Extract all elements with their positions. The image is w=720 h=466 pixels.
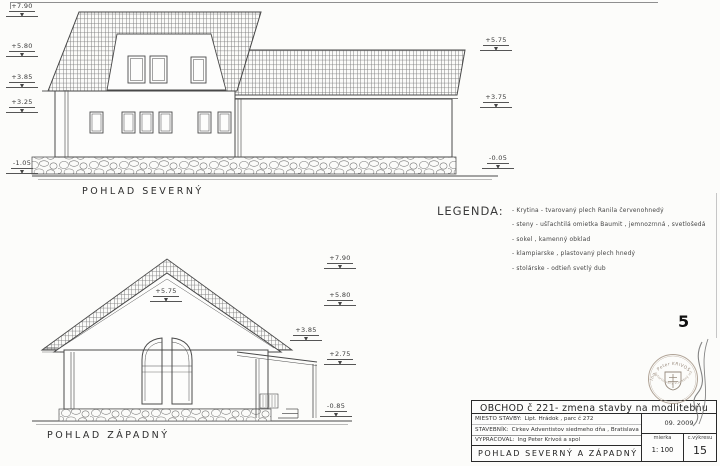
elevation-mark: +7.90: [6, 3, 38, 17]
west-view-title: POHLAD ZÁPADNÝ: [47, 430, 170, 441]
sheet-number: 5: [678, 312, 689, 331]
elevation-mark: +5.75: [150, 288, 182, 302]
legend-item: - Krytina - tvarovaný plech Ranila červe…: [512, 204, 720, 218]
scale-cell: mierka 1: 100: [642, 434, 684, 461]
elevation-mark: +5.75: [480, 37, 512, 51]
drawing-sheet: +7.90 +5.80 +3.85 +3.25 -1.05 +5.75 +3.7…: [0, 0, 720, 466]
signature: [693, 339, 708, 426]
elevation-mark: +5.80: [324, 292, 356, 306]
title-block-row: STAVEBNÍK:Cirkev Adventistov siedmeho dň…: [472, 425, 641, 436]
north-view-title: POHLAD SEVERNÝ: [82, 186, 204, 197]
legend-item: - klampiarske , plastovaný plech hnedý: [512, 247, 720, 261]
elevation-mark: +2.75: [324, 351, 356, 365]
title-block-row: VYPRACOVAL:Ing Peter Krivoš a spol: [472, 436, 641, 446]
elevation-mark: +3.85: [290, 327, 322, 341]
elevation-mark: +7.90: [324, 255, 356, 269]
elevation-mark: -0.05: [482, 155, 514, 169]
elevation-mark: -0.85: [320, 403, 352, 417]
elevation-mark: -1.05: [6, 160, 38, 174]
sheet-number-cell: c.výkresu 15: [684, 434, 716, 461]
elevation-mark: +3.85: [6, 74, 38, 88]
engineer-stamp: Ing. Peter KRIVOŠ autorizovaný stavebný …: [636, 336, 720, 430]
elevation-mark: +5.80: [6, 43, 38, 57]
elevation-mark: +3.75: [480, 94, 512, 108]
elevation-mark: +3.25: [6, 99, 38, 113]
north-elevation-drawing: [28, 0, 508, 196]
title-block-row: MIESTO STAVBY:Lipt. Hrádok , parc č 272: [472, 414, 641, 425]
legend-item: - sokel , kamenný obklad: [512, 233, 720, 247]
legend: - Krytina - tvarovaný plech Ranila červe…: [512, 204, 720, 276]
drawing-title: POHLAD SEVERNÝ A ZÁPADNÝ: [472, 446, 641, 461]
north-upper-windows: [128, 56, 206, 83]
legend-item: - steny - ušľachtilá omietka Baumit , je…: [512, 218, 720, 232]
legend-title: LEGENDA:: [437, 204, 504, 218]
legend-item: - stolárske - odtieň svetlý dub: [512, 262, 720, 276]
